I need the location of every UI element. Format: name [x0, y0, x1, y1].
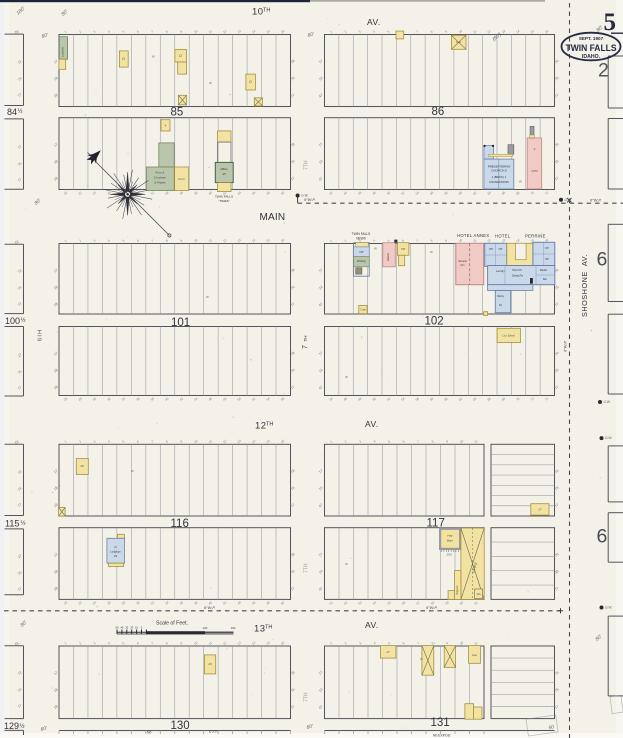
- svg-text:Wagons: Wagons: [456, 585, 459, 595]
- svg-text:6″W.P.: 6″W.P.: [426, 605, 438, 610]
- svg-text:TH: TH: [266, 422, 273, 428]
- svg-text:AV.: AV.: [367, 17, 381, 27]
- svg-text:Scale of Feet.: Scale of Feet.: [156, 621, 188, 627]
- svg-text:PERRINE: PERRINE: [525, 234, 546, 239]
- svg-text:Off: Off: [545, 246, 549, 250]
- svg-text:Hse: Hse: [456, 40, 461, 44]
- svg-text:CHURCH D: CHURCH D: [491, 169, 506, 173]
- svg-text:GTO: GTO: [531, 169, 538, 173]
- svg-text:6TH: 6TH: [38, 330, 44, 341]
- svg-text:6″W.P.: 6″W.P.: [590, 198, 602, 203]
- svg-text:Printing: Printing: [357, 259, 366, 263]
- svg-text:10A: 10A: [476, 593, 481, 596]
- svg-text:2S: 2S: [113, 555, 117, 558]
- svg-text:Hotel Off: Hotel Off: [512, 269, 522, 272]
- svg-text:101: 101: [171, 317, 190, 329]
- svg-text:G.W.: G.W.: [565, 198, 572, 202]
- svg-text:Saloon: Saloon: [386, 252, 390, 261]
- svg-text:6: 6: [597, 526, 608, 548]
- svg-text:Kit: Kit: [499, 304, 502, 307]
- svg-text:Laundry: Laundry: [496, 270, 505, 273]
- svg-text:Coal: Coal: [360, 308, 366, 312]
- svg-text:SHOSHONE AV.: SHOSHONE AV.: [580, 254, 589, 317]
- svg-text:102: 102: [425, 316, 444, 328]
- svg-text:N0: N0: [147, 731, 151, 735]
- svg-text:½: ½: [21, 317, 26, 324]
- svg-text:Off: Off: [489, 247, 493, 251]
- svg-text:AV.: AV.: [365, 620, 379, 630]
- svg-text:20: 20: [79, 464, 84, 468]
- svg-text:G.W.: G.W.: [604, 400, 611, 404]
- svg-text:Off: Off: [545, 257, 549, 261]
- svg-text:12: 12: [255, 421, 267, 432]
- svg-text:Laundry: Laundry: [61, 46, 65, 57]
- svg-text:116: 116: [171, 518, 189, 530]
- svg-text:TH: TH: [263, 8, 270, 14]
- svg-text:HOTEL ANNEX: HOTEL ANNEX: [457, 233, 489, 238]
- svg-text:Office: Office: [220, 167, 228, 171]
- svg-text:HOTEL: HOTEL: [495, 234, 511, 239]
- svg-text:Pantry: Pantry: [497, 295, 505, 298]
- svg-text:Sample: Sample: [458, 259, 467, 263]
- svg-text:27: 27: [385, 650, 390, 654]
- svg-text:13: 13: [254, 624, 266, 635]
- svg-text:6″W.P.: 6″W.P.: [304, 197, 316, 202]
- svg-text:6: 6: [597, 249, 608, 271]
- svg-text:½: ½: [21, 520, 26, 527]
- svg-text:131: 131: [431, 717, 450, 729]
- svg-text:Hay: Hay: [447, 534, 453, 538]
- svg-text:N0 EXPOS’: N0 EXPOS’: [433, 734, 451, 738]
- svg-text:FOUNDATIONS: FOUNDATIONS: [489, 180, 509, 184]
- svg-text:Lbr Shed: Lbr Shed: [502, 334, 515, 338]
- svg-text:10: 10: [252, 7, 264, 18]
- svg-text:2: 2: [533, 147, 536, 151]
- svg-text:1 (BRICK) 1: 1 (BRICK) 1: [492, 175, 507, 179]
- svg-text:& Paints: & Paints: [154, 181, 166, 185]
- svg-text:Furn &: Furn &: [155, 171, 164, 175]
- svg-text:E X P.: E X P.: [209, 730, 218, 734]
- svg-text:200: 200: [445, 553, 451, 557]
- svg-text:7TH: 7TH: [304, 563, 310, 573]
- svg-text:27: 27: [537, 508, 542, 512]
- svg-text:TH: TH: [303, 336, 308, 342]
- svg-text:6″W.P.: 6″W.P.: [563, 340, 568, 352]
- svg-text:20: 20: [207, 662, 212, 666]
- svg-text:Barn: Barn: [447, 539, 454, 543]
- svg-text:7TH: 7TH: [304, 692, 310, 702]
- svg-text:150: 150: [231, 626, 236, 630]
- svg-text:129: 129: [4, 721, 19, 731]
- svg-text:100: 100: [203, 626, 208, 630]
- svg-text:SEPT. 1907: SEPT. 1907: [579, 36, 604, 41]
- svg-text:“TIMES”: “TIMES”: [218, 199, 230, 203]
- svg-text:85: 85: [171, 107, 184, 119]
- svg-text:½: ½: [20, 723, 25, 730]
- svg-text:½: ½: [18, 108, 23, 115]
- svg-text:115: 115: [5, 518, 19, 528]
- svg-text:Barber: Barber: [540, 269, 547, 272]
- svg-text:7: 7: [302, 345, 309, 349]
- svg-text:NEWS: NEWS: [356, 236, 366, 240]
- svg-text:Off: Off: [499, 247, 503, 251]
- svg-text:84: 84: [7, 107, 17, 117]
- svg-text:7TH: 7TH: [304, 160, 310, 170]
- svg-text:25: 25: [221, 172, 226, 176]
- svg-text:TH: TH: [265, 625, 272, 631]
- svg-text:86: 86: [432, 106, 445, 118]
- svg-text:Dining Rm: Dining Rm: [512, 275, 523, 278]
- svg-text:D: D: [114, 545, 116, 549]
- svg-text:6″W.P.: 6″W.P.: [204, 605, 216, 610]
- svg-text:Lodgings: Lodgings: [110, 551, 121, 554]
- svg-text:MAIN: MAIN: [260, 212, 286, 223]
- svg-text:AV.: AV.: [365, 419, 379, 429]
- svg-text:100: 100: [5, 316, 20, 326]
- svg-text:130: 130: [171, 720, 190, 732]
- svg-text:TWIN FALLS: TWIN FALLS: [566, 43, 617, 54]
- svg-text:Furn: Furn: [178, 177, 185, 181]
- svg-text:Gas: Gas: [472, 653, 478, 657]
- svg-text:G.W.: G.W.: [605, 606, 612, 610]
- svg-text:G.W.: G.W.: [605, 436, 612, 440]
- svg-text:5: 5: [604, 9, 617, 36]
- svg-text:Bar: Bar: [543, 278, 547, 281]
- svg-text:Crockery: Crockery: [154, 176, 167, 180]
- svg-text:2: 2: [598, 60, 609, 82]
